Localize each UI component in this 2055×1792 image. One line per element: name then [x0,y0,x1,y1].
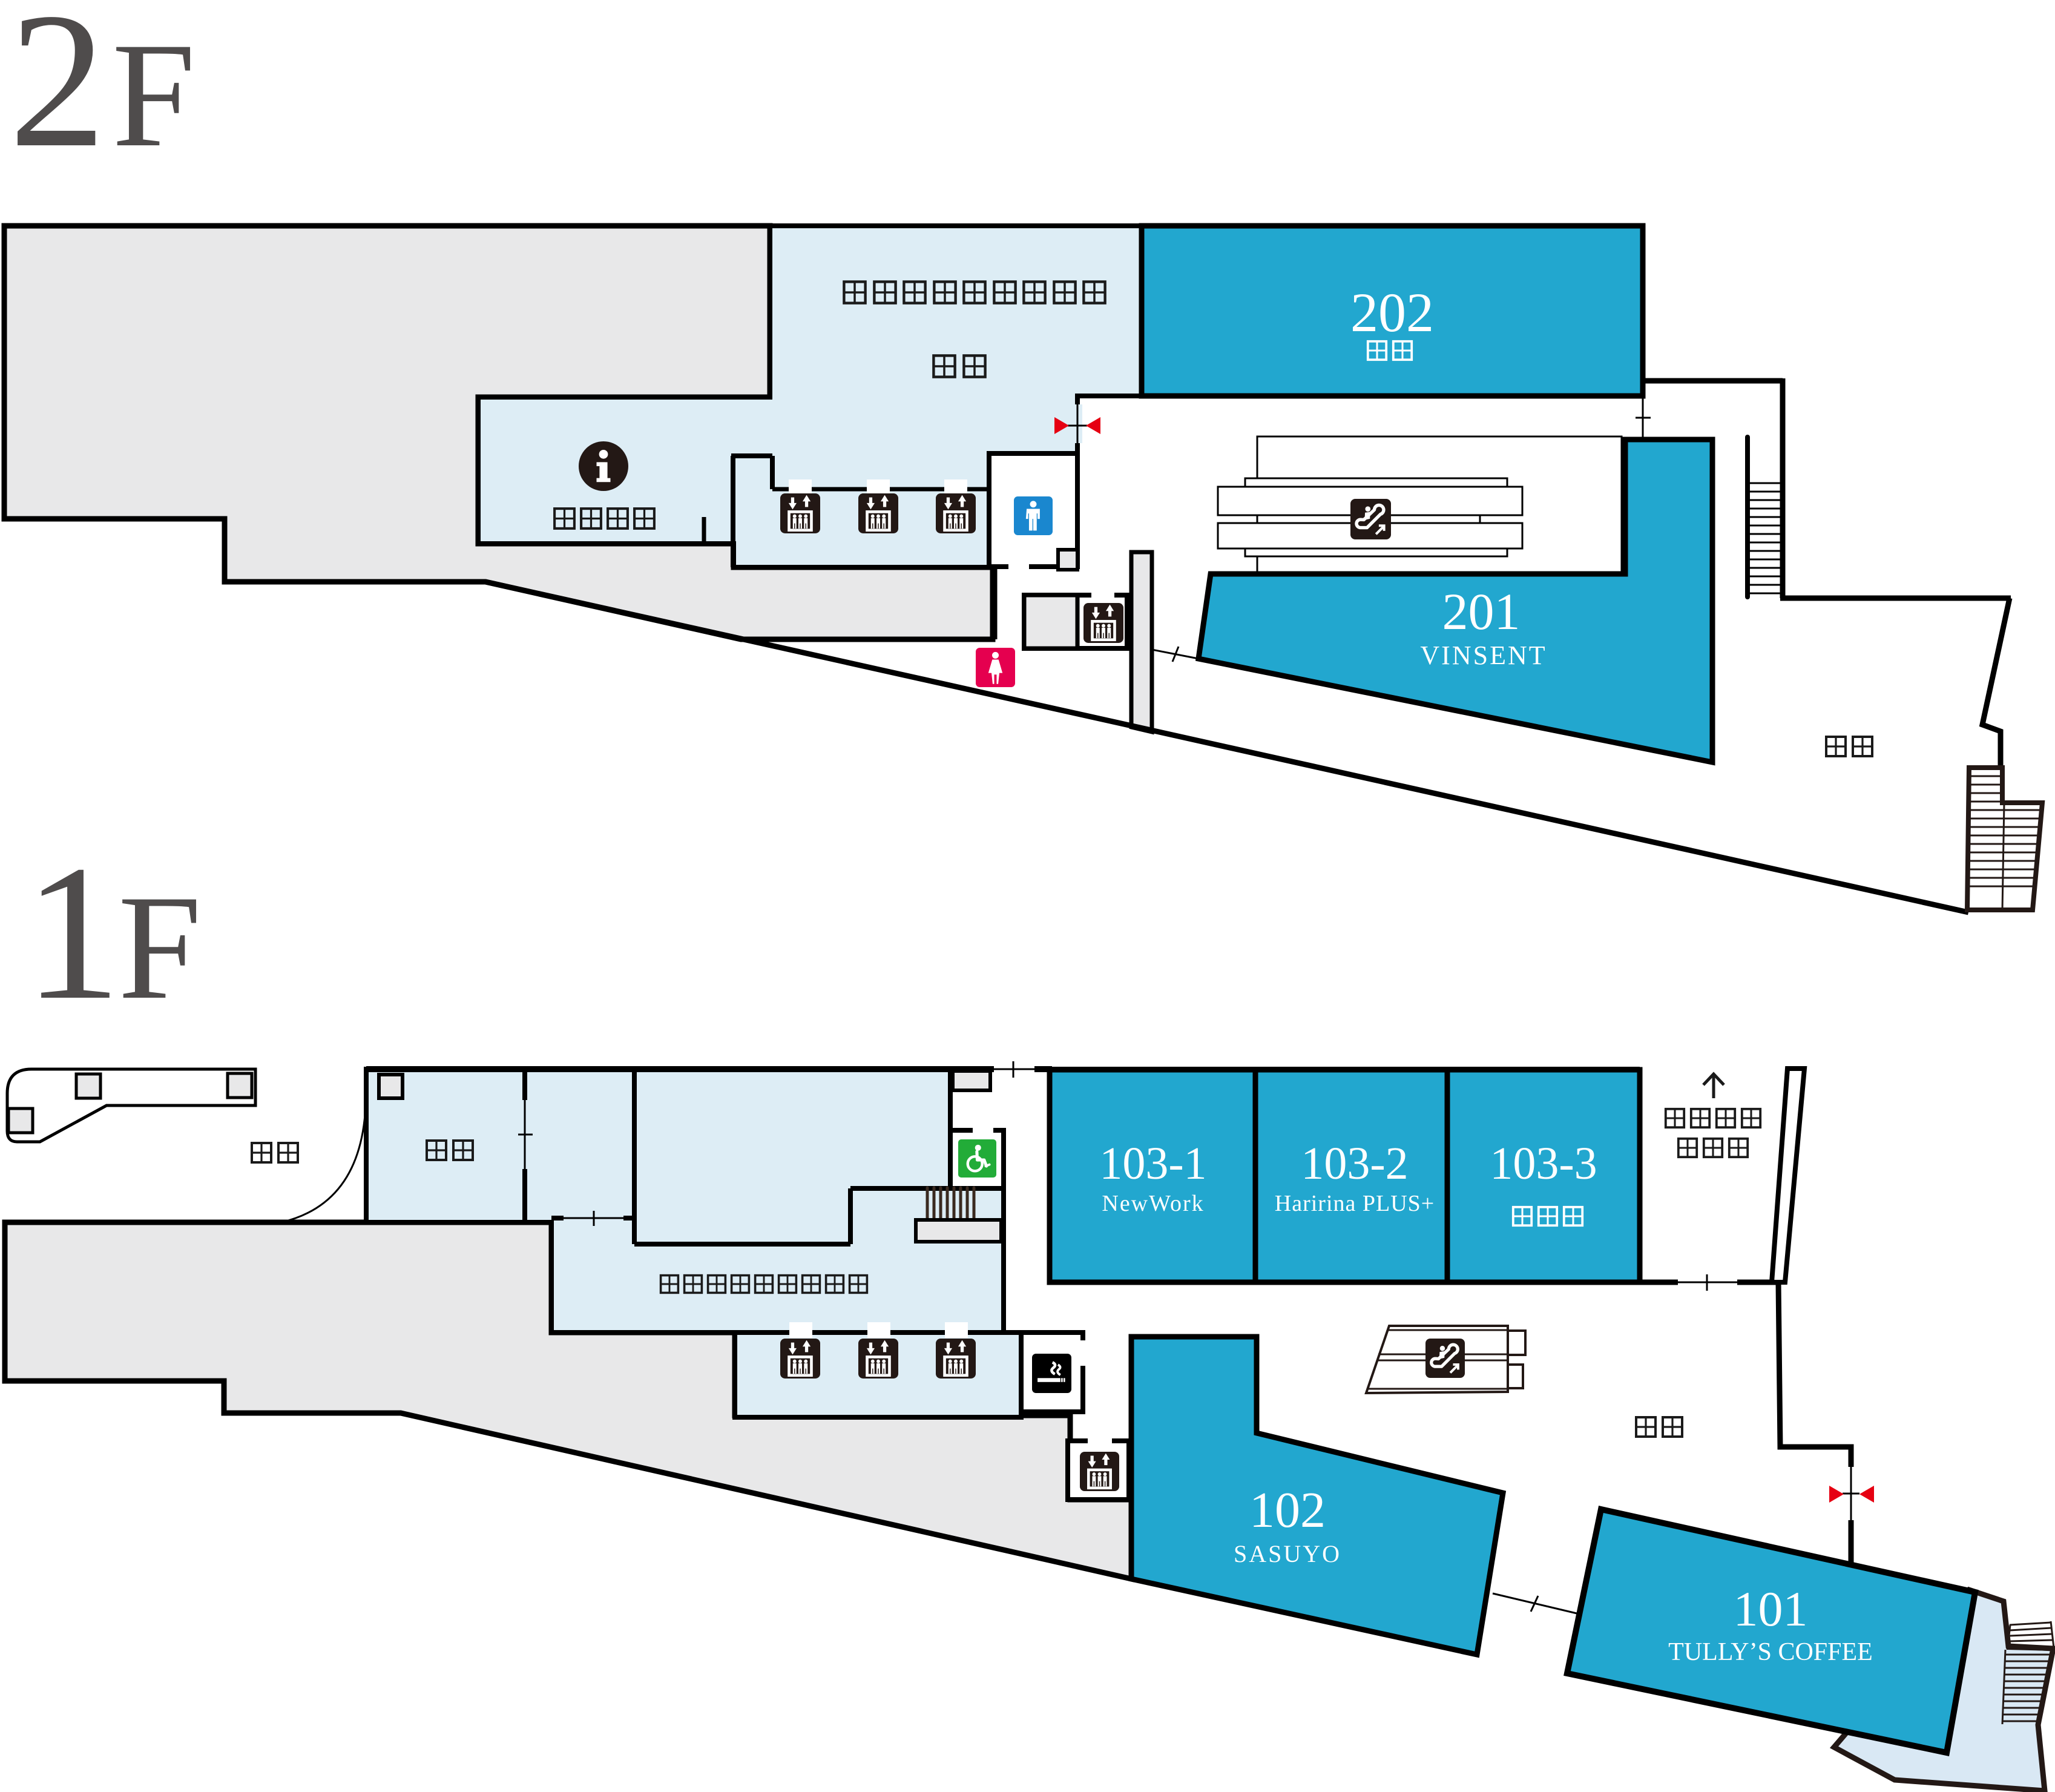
svg-text:1: 1 [24,826,121,1040]
svg-text:NewWork: NewWork [1102,1191,1204,1216]
svg-text:202: 202 [1350,282,1434,343]
svg-text:102: 102 [1249,1482,1326,1538]
svg-text:103-1: 103-1 [1099,1138,1206,1189]
svg-text:201: 201 [1442,582,1521,641]
svg-text:SASUYO: SASUYO [1234,1540,1341,1567]
svg-text:TULLY’S COFFEE: TULLY’S COFFEE [1668,1638,1873,1666]
svg-text:101: 101 [1734,1581,1808,1636]
svg-text:F: F [118,864,202,1030]
svg-text:Haririna PLUS+: Haririna PLUS+ [1275,1191,1435,1216]
svg-text:103-2: 103-2 [1301,1138,1408,1189]
svg-text:F: F [112,12,196,178]
svg-text:103-3: 103-3 [1490,1138,1597,1189]
svg-text:VINSENT: VINSENT [1420,641,1547,670]
svg-text:2: 2 [9,0,106,188]
